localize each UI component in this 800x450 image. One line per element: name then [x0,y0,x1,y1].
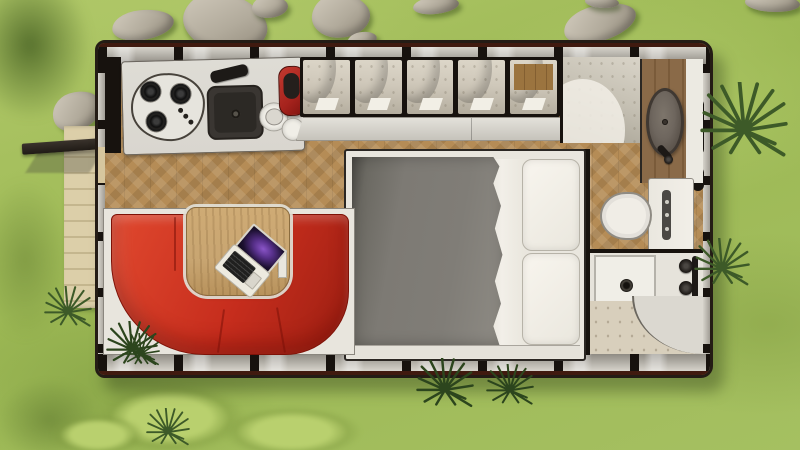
basin-faucet-knob [664,155,673,164]
doorway-opening [98,147,105,183]
bush-bottom-2 [222,406,362,450]
hob-knob-3 [188,120,193,125]
grass-tuft-bottom-3 [146,408,190,450]
storage-bin-wood-shelf [514,64,553,90]
storage-bin [407,60,454,114]
grass-tuft-left [44,286,92,334]
cistern-control-panel [662,190,671,240]
grass-tuft-bottom-1 [416,358,474,416]
overhead-storage-row [300,57,560,117]
wardrobe [560,57,640,143]
oval-basin [646,88,684,156]
sofa-seam-1 [174,217,176,271]
burner-1 [140,81,161,102]
storage-bin [510,60,557,114]
bed-foot-rail [350,345,580,358]
bush-bottom-3 [50,414,145,450]
bed [344,149,586,361]
gas-hob [130,72,206,142]
storage-bin [458,60,505,114]
shower-valve-2 [679,281,693,295]
grass-tuft-right-small [694,238,750,294]
sofa-seam-2 [217,309,225,353]
roof-edge-bottom [98,371,710,375]
toilet [600,192,652,240]
shower-valve-1 [679,259,693,273]
grass-tuft-bottom-2 [486,364,534,412]
sofa-seam-3 [276,307,286,353]
hob-knob-2 [183,114,188,119]
kitchen-sink [206,85,263,140]
grass-tuft-right-large [700,82,788,170]
storage-bin [355,60,402,114]
toilet-cistern [648,178,694,256]
burner-3 [146,111,167,132]
tiny-house [95,40,713,378]
hob-knob-1 [178,108,183,113]
sink-faucet [209,63,249,84]
indoor-plant-2 [122,333,160,371]
kitchen-tall-cabinet [105,57,121,153]
storage-bin [303,60,350,114]
basin-drain [662,119,668,125]
burner-2 [170,84,191,105]
gray-duvet [352,157,504,345]
kitchen-counter [121,57,305,156]
scene [0,0,800,450]
pillow-top [522,159,580,251]
shower-drain [620,279,633,292]
pillow-bottom [522,253,580,345]
espresso-maker-top [283,73,300,99]
